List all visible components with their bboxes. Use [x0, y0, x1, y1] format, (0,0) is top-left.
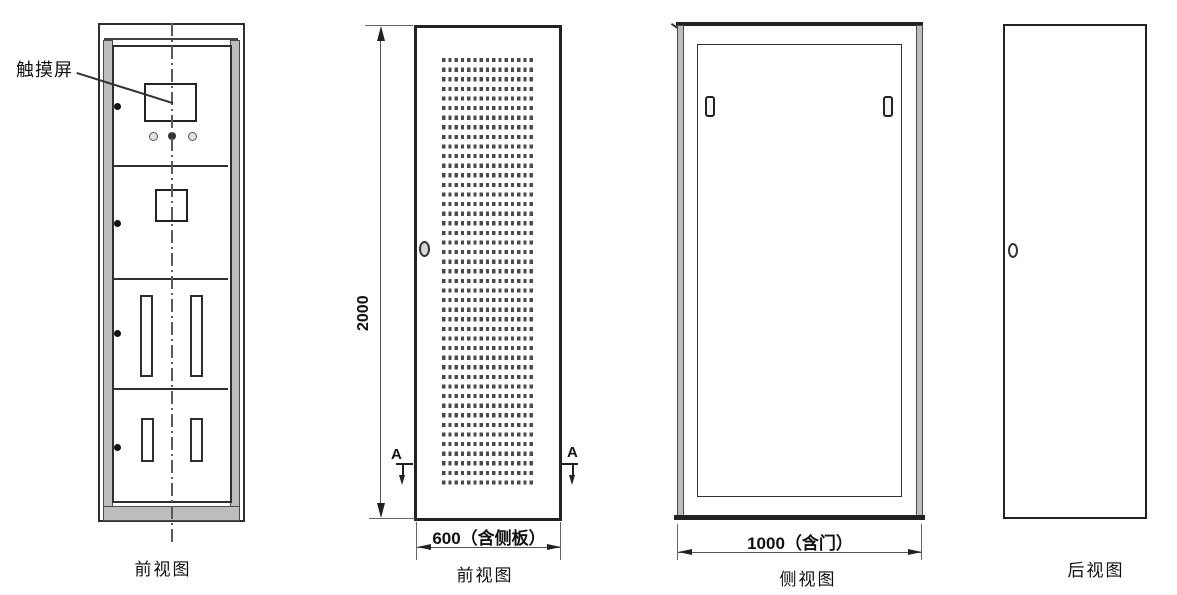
engineering-drawing: 触摸屏 前视图 2000 A A 600（含侧板） 前视图: [0, 0, 1177, 595]
height-extension-bottom: [369, 518, 415, 519]
indicator-light-left: [149, 132, 158, 141]
indicator-light-right: [188, 132, 197, 141]
hinge-dot: [114, 220, 121, 227]
hinge-dot: [114, 444, 121, 451]
hinge-dot: [114, 103, 121, 110]
side-dimension-arrow-right: [908, 549, 922, 555]
vent-slot: [140, 295, 153, 377]
height-dimension-arrow-up: [377, 26, 385, 41]
perforation-field: [442, 58, 533, 490]
width-dimension-text: 600（含侧板）: [424, 524, 554, 549]
handle-slot-left: [705, 96, 715, 117]
rear-panel: [1003, 24, 1147, 519]
side-top-edge: [676, 22, 923, 26]
width-extension-right: [560, 522, 561, 560]
side-dimension-arrow-left: [678, 549, 692, 555]
side-inner-panel: [697, 44, 902, 497]
vent-slot: [190, 418, 203, 462]
height-extension-top: [365, 25, 413, 26]
view-label-door-front: 前视图: [440, 561, 530, 586]
width-extension-left: [416, 522, 417, 560]
section-marker-letter-left: A: [391, 446, 402, 463]
side-dimension-text: 1000（含门）: [720, 529, 880, 554]
vent-slot: [190, 295, 203, 377]
section-marker-tick-left: [396, 463, 413, 465]
section-marker-letter-right: A: [567, 444, 578, 461]
side-left-frame: [677, 25, 684, 518]
view-label-rear: 后视图: [1051, 556, 1141, 581]
door-lock: [419, 241, 430, 257]
side-right-frame: [916, 25, 923, 518]
section-marker-tick-right: [561, 463, 578, 465]
height-dimension-text: 2000: [355, 283, 373, 331]
view-label-cabinet-front: 前视图: [118, 555, 208, 580]
side-bottom-edge: [674, 515, 925, 520]
section-marker-arrow-left: [399, 475, 405, 485]
height-dimension-line: [380, 30, 381, 512]
height-dimension-arrow-down: [377, 503, 385, 518]
section-marker-arrow-right: [569, 475, 575, 485]
view-label-side: 侧视图: [763, 565, 853, 590]
hinge-dot: [114, 330, 121, 337]
rear-lock: [1008, 243, 1018, 258]
vent-slot: [141, 418, 154, 462]
touch-screen-label: 触摸屏: [16, 56, 73, 82]
handle-slot-right: [883, 96, 893, 117]
